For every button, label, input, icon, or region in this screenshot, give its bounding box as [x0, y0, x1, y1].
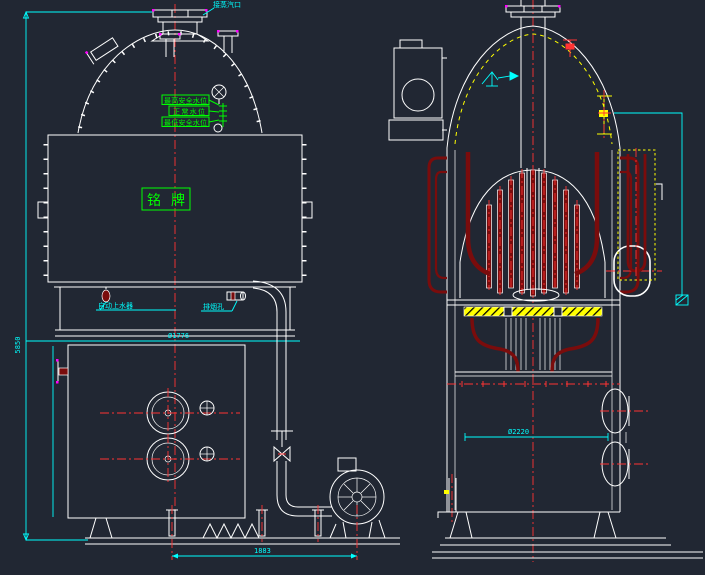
- water-level-label-low: 最低安全水位: [164, 118, 207, 127]
- right-view: Ø2220: [389, 0, 703, 562]
- safety-valve: [85, 35, 119, 64]
- mounting-bracket: [597, 90, 612, 140]
- nameplate: 铭牌: [142, 188, 190, 210]
- right-shell-diameter-dim-text: Ø2220: [508, 428, 529, 436]
- side-lug-left: [38, 202, 48, 218]
- water-level-callouts: 最高安全水位 正常水位 最低安全水位: [162, 95, 219, 127]
- blowdown-valve: [271, 431, 293, 461]
- boiler-drawing[interactable]: 5850 接蒸汽口: [0, 0, 705, 575]
- anchor-bolt: [166, 505, 178, 560]
- blower-fan: [330, 458, 385, 538]
- steam-outlet-label: 接蒸汽口: [213, 0, 241, 9]
- dome-red-fitting: [563, 40, 577, 57]
- lower-drum: [53, 345, 245, 518]
- right-dome-outline: [447, 26, 620, 148]
- shell-diameter-dim-text: Ø1776: [168, 332, 189, 340]
- foundation: [85, 505, 400, 560]
- right-shell-diameter-dimension: Ø2220: [465, 428, 608, 441]
- steam-outlet-callout: 接蒸汽口: [203, 0, 241, 15]
- dome-nozzle-left: [159, 33, 181, 57]
- dome-nozzle-right: [217, 30, 239, 53]
- grate: [464, 307, 602, 316]
- nameplate-label: 铭牌: [147, 192, 185, 209]
- overall-height-dimension: 5850: [14, 12, 152, 540]
- pressure-gauge-icon: [212, 85, 226, 104]
- blowdown-pipe: [253, 281, 332, 516]
- auto-feeder: 自动上水器: [96, 287, 176, 310]
- dome-outline: [78, 30, 262, 133]
- blowdown-nozzles: [600, 389, 648, 486]
- right-foundation: [432, 512, 703, 558]
- base-width-dim-text: 1883: [254, 547, 271, 555]
- lower-tube-bundle: [455, 318, 612, 376]
- left-view: 5850 接蒸汽口: [14, 0, 400, 560]
- water-gauge-glass: [214, 103, 227, 132]
- dome-insulation: [455, 34, 612, 144]
- economizer-panel: [618, 148, 662, 280]
- water-line: [447, 381, 620, 387]
- level-regulator-symbol: [482, 72, 518, 86]
- leader-line: [614, 113, 688, 305]
- inspection-hole: 排烟孔: [201, 292, 246, 311]
- water-level-label-high: 最高安全水位: [164, 96, 207, 105]
- furnace-tubes: [487, 166, 580, 301]
- inspection-hole-label: 排烟孔: [203, 302, 224, 311]
- dome-rivet-ticks: [80, 33, 260, 128]
- cad-canvas[interactable]: 5850 接蒸汽口: [0, 0, 705, 575]
- overall-height-dim-text: 5850: [14, 337, 22, 354]
- manhole-lower: [100, 434, 240, 484]
- side-lug-right: [302, 202, 312, 218]
- water-level-label-normal: 正常水位: [173, 107, 205, 116]
- side-fan-box: [389, 40, 447, 140]
- external-downcomers-left: [429, 158, 447, 292]
- manhole-upper: [100, 388, 240, 438]
- anchor-bolt: [312, 505, 324, 542]
